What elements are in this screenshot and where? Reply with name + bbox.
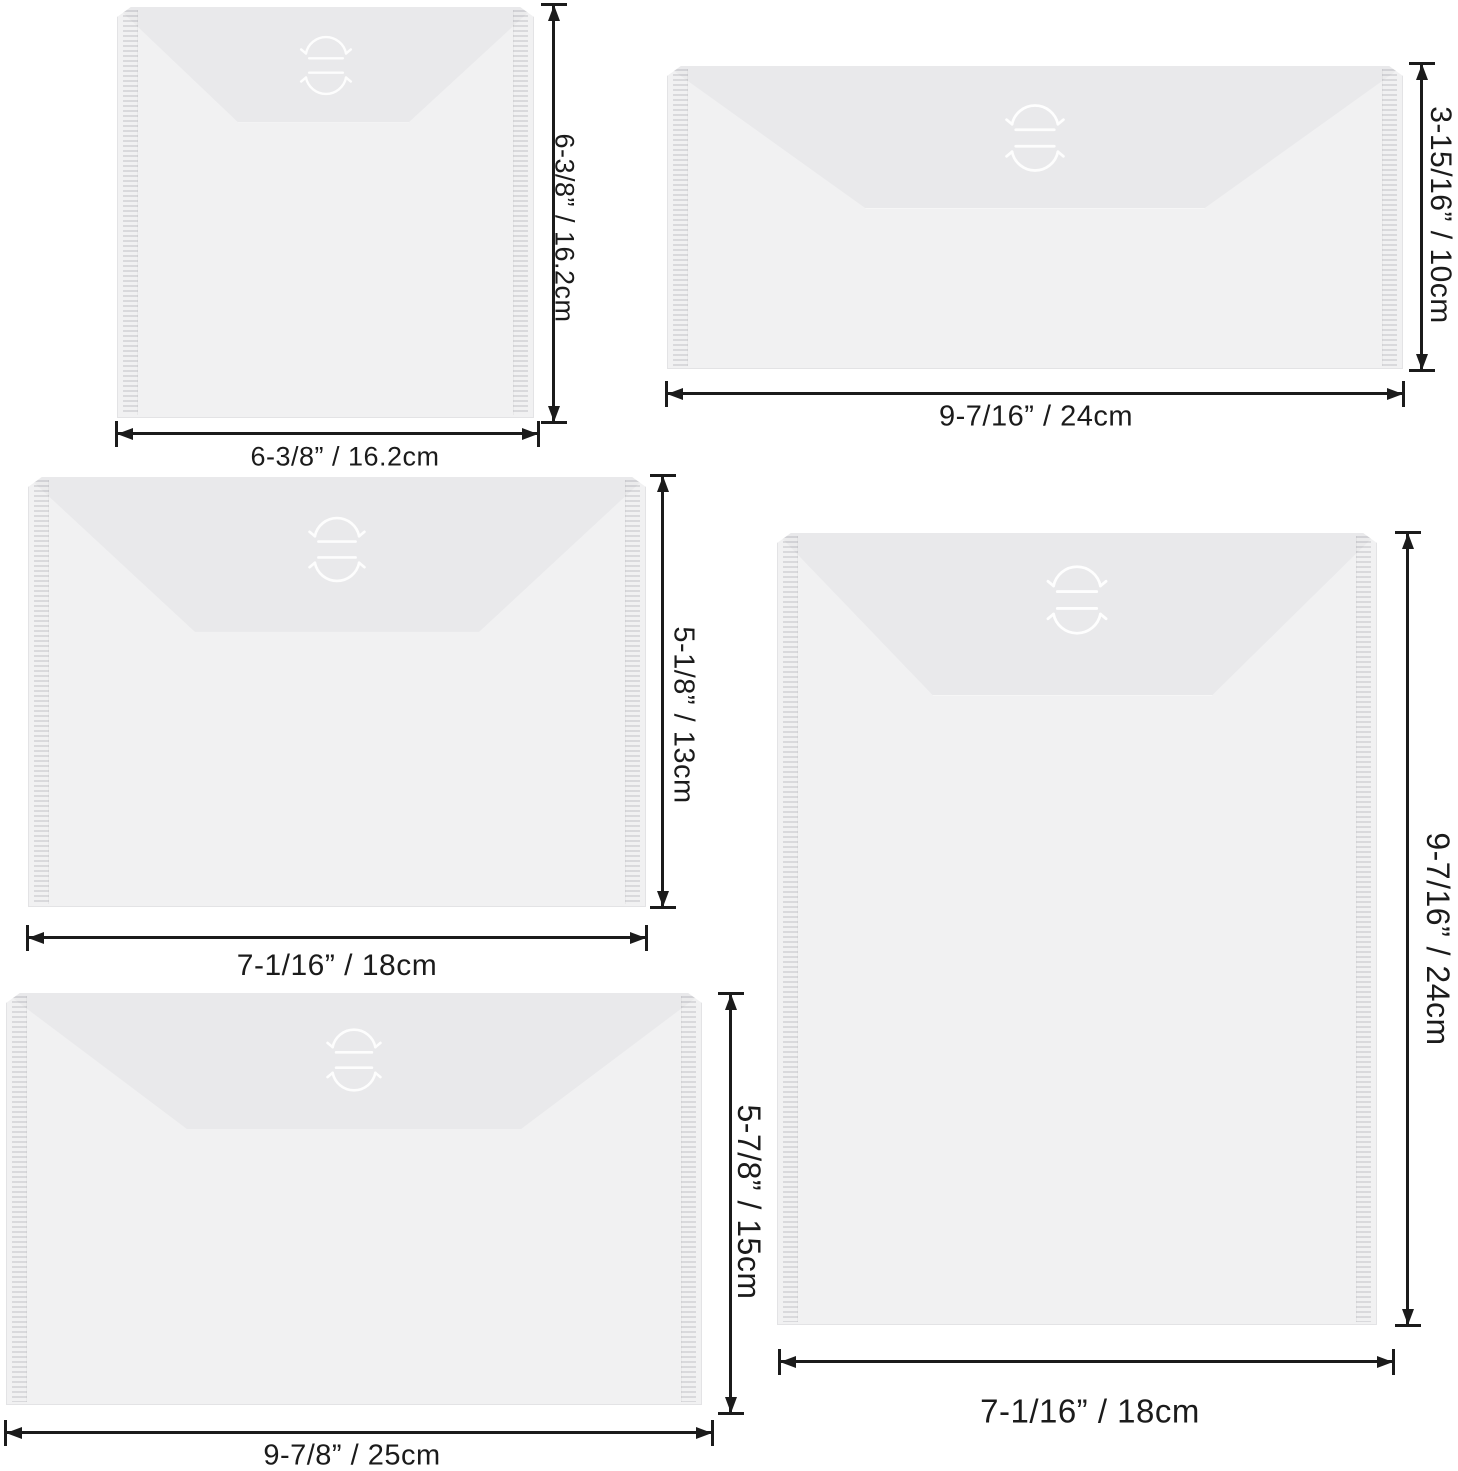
width-dimension-line (667, 392, 1403, 395)
left-seal-strip (34, 480, 49, 904)
left-seal-strip (12, 996, 27, 1402)
height-dimension-label: 9-7/16” / 24cm (1422, 832, 1454, 1045)
width-dimension-label: 9-7/16” / 24cm (939, 403, 1133, 432)
height-dimension-label: 5-7/8” / 15cm (733, 1104, 765, 1299)
right-seal-strip (1382, 69, 1397, 366)
height-dimension-label: 5-1/8” / 13cm (669, 626, 698, 803)
height-dimension-label: 6-3/8” / 16.2cm (551, 133, 578, 322)
flap-closure-icon (1002, 94, 1068, 182)
envelope-square-6x6 (117, 7, 534, 418)
width-dimension-line (117, 432, 538, 435)
left-seal-strip (123, 10, 138, 415)
width-dimension-label: 7-1/16” / 18cm (237, 951, 437, 981)
width-dimension-line (28, 936, 646, 939)
height-dimension-line (661, 476, 664, 907)
right-seal-strip (513, 10, 528, 415)
envelope-medium-landscape (28, 477, 646, 907)
flap-closure-icon (1043, 555, 1111, 645)
envelope-slim-wide (667, 66, 1403, 369)
width-dimension-line (6, 1431, 712, 1434)
height-dimension-line (1420, 64, 1423, 370)
height-dimension-line (1406, 533, 1409, 1325)
height-dimension-label: 3-15/16” / 10cm (1425, 106, 1455, 324)
width-dimension-line (780, 1360, 1393, 1363)
envelope-size-diagram: 6-3/8” / 16.2cm 6-3/8” / 16.2cm 3-15/16”… (0, 0, 1458, 1471)
flap-closure-icon (323, 1019, 385, 1101)
left-seal-strip (783, 536, 798, 1322)
width-dimension-label: 7-1/16” / 18cm (980, 1395, 1200, 1428)
flap-closure-icon (305, 507, 369, 592)
width-dimension-label: 6-3/8” / 16.2cm (250, 444, 439, 471)
left-seal-strip (673, 69, 688, 366)
right-seal-strip (1356, 536, 1371, 1322)
envelope-large-landscape (6, 993, 702, 1405)
width-dimension-label: 9-7/8” / 25cm (263, 1442, 440, 1471)
right-seal-strip (625, 480, 640, 904)
right-seal-strip (681, 996, 696, 1402)
envelope-tall-portrait (777, 533, 1377, 1325)
flap-closure-icon (297, 27, 355, 104)
